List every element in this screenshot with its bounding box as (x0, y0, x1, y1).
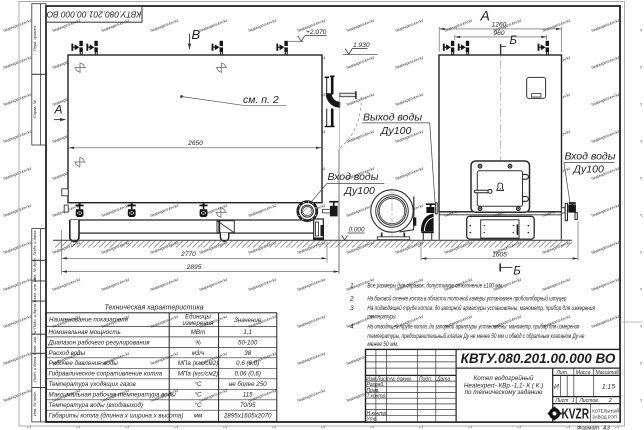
svg-text:Лит.: Лит. (556, 370, 569, 376)
svg-text:Дата: Дата (436, 376, 450, 382)
svg-text:температуры.: температуры. (367, 313, 396, 320)
svg-text:На подводящей трубе котла, д: На подводящей трубе котла, до запорной а… (367, 304, 595, 312)
svg-text:Гидравлическое сопративление к: Гидравлическое сопративление котла (49, 371, 163, 378)
svg-text:0,6 (6,0): 0,6 (6,0) (236, 360, 259, 367)
svg-text:°С: °С (195, 392, 202, 399)
svg-text:1605: 1605 (492, 252, 507, 259)
svg-text:см. п. 2: см. п. 2 (243, 94, 279, 106)
svg-text:Взам. инв. №: Взам. инв. № (32, 277, 37, 302)
svg-text:Значение: Значение (234, 317, 262, 324)
svg-text:50-100: 50-100 (238, 339, 258, 346)
svg-text:115: 115 (243, 392, 253, 399)
svg-text:КВТУ.080.201.00.000 ВО: КВТУ.080.201.00.000 ВО (46, 9, 141, 19)
svg-text:1: 1 (572, 398, 575, 404)
svg-text:Техническая характеристика: Техническая характеристика (104, 305, 203, 312)
svg-text:Масштаб: Масштаб (596, 370, 620, 376)
svg-text:2895х1605х2070: 2895х1605х2070 (223, 413, 272, 420)
svg-text:0,06 (0,6): 0,06 (0,6) (234, 371, 260, 378)
svg-text:Габариты котла (длинна х ширин: Габариты котла (длинна х ширина х высота… (49, 413, 184, 420)
svg-text:1260: 1260 (492, 22, 507, 29)
svg-text:Формат: Формат (577, 425, 600, 430)
svg-text:Выход воды: Выход воды (363, 112, 422, 124)
svg-text:°С: °С (195, 402, 202, 409)
svg-text:Подп.: Подп. (419, 376, 432, 382)
svg-text:4: 4 (350, 324, 354, 331)
svg-text:На боковой стенке котла в обла: На боковой стенке котла в области топочн… (367, 294, 566, 302)
svg-text:1: 1 (350, 282, 354, 289)
svg-text:Б: Б (513, 265, 521, 277)
svg-text:3: 3 (350, 305, 354, 312)
svg-text:А: А (54, 103, 63, 117)
svg-text:температуры, предохранительный: температуры, предохранительный клапан Ду… (367, 332, 584, 340)
svg-text:м3/ч: м3/ч (192, 350, 205, 357)
svg-text:ЗАВОД РЭП: ЗАВОД РЭП (592, 414, 617, 419)
svg-text:измерения: измерения (183, 320, 215, 327)
svg-text:KVZR: KVZR (562, 407, 590, 423)
svg-text:Наименование показателя: Наименование показателя (49, 317, 129, 324)
svg-text:мм: мм (194, 413, 203, 420)
svg-text:1:15: 1:15 (602, 384, 615, 391)
svg-text:Справ. №: Справ. № (32, 99, 37, 118)
svg-text:Ду100: Ду100 (344, 185, 375, 197)
svg-text:менее 50 мм.: менее 50 мм. (367, 341, 398, 348)
svg-text:2895: 2895 (186, 264, 202, 271)
svg-text:%: % (195, 339, 201, 346)
svg-text:38: 38 (244, 350, 251, 357)
svg-text:Расход воды: Расход воды (49, 350, 86, 357)
svg-text:°С: °С (195, 381, 202, 388)
svg-text:Подп. и дата: Подп. и дата (32, 356, 37, 382)
svg-text:Максимальная рабочая температу: Максимальная рабочая температура воды (49, 392, 177, 399)
svg-text:МВт: МВт (191, 329, 205, 336)
svg-text:Лист: Лист (555, 398, 569, 404)
svg-text:В: В (192, 27, 201, 42)
svg-text:Б: Б (510, 35, 518, 47)
svg-text:МПа (кгс/см2): МПа (кгс/см2) (178, 360, 218, 367)
svg-text:по техническому заданию: по техническому заданию (465, 388, 543, 396)
svg-text:Инв. № подл.: Инв. № подл. (32, 391, 37, 416)
svg-text:2: 2 (349, 295, 354, 302)
svg-text:1.930: 1.930 (353, 42, 370, 49)
svg-text:Все размеры для справок, допус: Все размеры для справок, допустимое откл… (367, 281, 503, 289)
svg-text:А: А (480, 8, 490, 24)
svg-text:КВТУ.080.201.00.000 ВО: КВТУ.080.201.00.000 ВО (461, 351, 616, 366)
svg-text:Масса: Масса (576, 370, 591, 376)
svg-text:Диапазон рабочего регулировани: Диапазон рабочего регулирования (48, 339, 151, 346)
svg-text:На отводящей трубе котла ,до з: На отводящей трубе котла ,до запорной ар… (367, 323, 579, 331)
svg-text:Котел водогрейный: Котел водогрейный (474, 374, 534, 382)
svg-text:Номинальная мощность: Номинальная мощность (49, 329, 121, 336)
svg-text:Перв. примен.: Перв. примен. (32, 25, 37, 52)
svg-text:Подп. и дата: Подп. и дата (32, 303, 37, 329)
svg-text:И: И (554, 384, 559, 391)
svg-text:КОТЕЛЬНЫЙ: КОТЕЛЬНЫЙ (592, 409, 619, 414)
svg-text:+2.070: +2.070 (306, 29, 327, 36)
svg-text:Температура воды (вход/выход): Температура воды (вход/выход) (49, 402, 143, 409)
svg-text:0.000: 0.000 (349, 227, 365, 234)
svg-text:Ду100: Ду100 (380, 125, 411, 137)
svg-text:Вход воды: Вход воды (565, 151, 616, 163)
svg-text:2650: 2650 (187, 140, 203, 147)
svg-text:Т.контр.: Т.контр. (367, 394, 387, 400)
svg-text:Взам. инв. №: Взам. инв. № (32, 330, 37, 355)
svg-text:Температура уходящих газов: Температура уходящих газов (49, 381, 137, 388)
svg-text:960: 960 (493, 30, 504, 37)
svg-text:Вход воды: Вход воды (328, 171, 379, 183)
svg-text:Подп. и дата: Подп. и дата (32, 230, 37, 256)
svg-text:Утв.: Утв. (367, 417, 378, 423)
svg-text:А3: А3 (602, 425, 611, 430)
svg-text:1,1: 1,1 (243, 329, 252, 336)
svg-text:не более 250: не более 250 (229, 381, 267, 388)
svg-text:2: 2 (608, 398, 612, 404)
svg-text:70/95: 70/95 (240, 402, 256, 409)
svg-text:2770: 2770 (180, 251, 196, 258)
svg-text:Ду100: Ду100 (573, 164, 604, 176)
svg-text:Листов: Листов (579, 398, 599, 404)
svg-text:№ докум.: № докум. (390, 376, 412, 382)
svg-text:МПа (кгс/см2): МПа (кгс/см2) (178, 371, 218, 378)
svg-text:Рабочее давление воды: Рабочее давление воды (49, 360, 119, 367)
